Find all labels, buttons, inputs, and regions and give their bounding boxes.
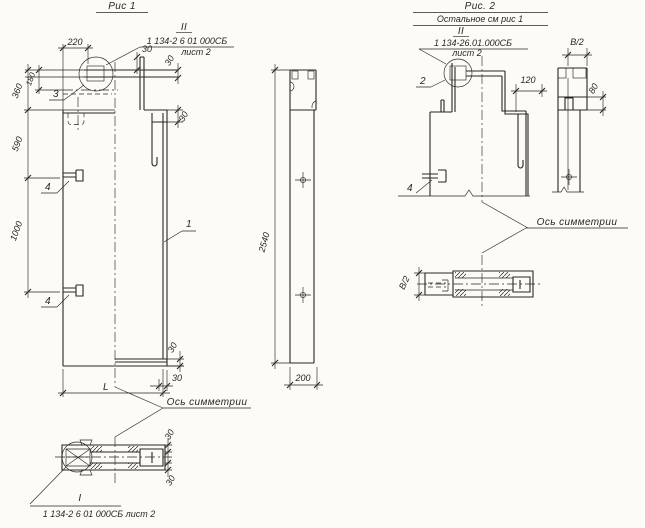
dim-220-label: 220 <box>66 37 82 47</box>
mark-1-leader <box>164 231 196 242</box>
fig1: Рис 1 II 1 134-2 6 01 000СБ лист 2 <box>8 1 251 519</box>
fig1-section-dim-30-top: 30 <box>163 428 177 442</box>
fig2-detail-callout: II 1 134-26.01.000СБ лист 2 <box>419 26 528 64</box>
fig2-side-view: В/2 80 <box>552 37 606 192</box>
fig2-section-centerlines <box>417 255 541 309</box>
dim-360-label: 360 <box>10 82 25 100</box>
dim-30-bottom-v-label: 30 <box>166 341 180 355</box>
drawing-canvas: Рис 1 II 1 134-2 6 01 000СБ лист 2 <box>0 0 645 528</box>
fig1-axis-leader <box>115 387 251 437</box>
fig1-callout-leader <box>106 47 140 65</box>
dim-30-bottom-v-lines <box>167 351 184 372</box>
fig2-axis-label: Ось симметрии <box>537 217 618 228</box>
dim-30-plate-label: 30 <box>142 44 152 54</box>
dim-left-chain-lines <box>28 64 39 298</box>
fig2-section-weld-4 <box>499 289 510 296</box>
fig1-section-view: 30 30 I 1 134-2 6 01 000СБ лист 2 <box>30 428 177 519</box>
dim-80-label: 80 <box>587 82 601 96</box>
fig2-callout-doc: 1 134-26.01.000СБ <box>434 38 512 48</box>
dim-590-label: 590 <box>10 135 25 153</box>
side-view-tab-2 <box>308 71 314 79</box>
drawing-sheet: Рис 1 II 1 134-2 6 01 000СБ лист 2 <box>0 0 645 528</box>
mark-3-label: 3 <box>53 89 59 100</box>
fig2-side-tab-2 <box>573 68 586 78</box>
fig2-callout-leader <box>419 49 446 64</box>
side-view: 2540 200 <box>256 64 323 390</box>
dim-L-lines <box>58 369 170 397</box>
fig1-member-lines <box>63 57 184 366</box>
fig2-callout-sheet: лист 2 <box>451 48 482 58</box>
fig1-section-weld-2 <box>90 463 102 469</box>
fig1-callout-sheet: лист 2 <box>180 47 211 57</box>
fig1-detail-circle <box>79 57 113 91</box>
fig2-section-weld-3 <box>499 272 510 278</box>
fig2-section-weld-1 <box>455 272 466 278</box>
dim-30-bottom-h-label: 30 <box>172 373 182 383</box>
fig1-hidden-centerlines <box>63 90 118 131</box>
fig2-side-hole-cross <box>561 169 577 185</box>
fig1-title: Рис 1 <box>108 1 136 12</box>
mark-2-label: 2 <box>419 76 426 87</box>
dim-120-lines <box>511 84 547 112</box>
fig1-extension-lines <box>24 70 115 292</box>
fig1-hidden-outline <box>63 94 112 125</box>
fig1-weld-hatch <box>87 66 104 81</box>
dim-L-label: L <box>103 382 109 393</box>
fig2-break-line <box>398 190 530 196</box>
fig1-front-view <box>24 57 184 486</box>
dim-2540-label: 2540 <box>256 231 271 254</box>
mark-4b-label: 4 <box>45 296 51 307</box>
fig1-section-doc: 1 134-2 6 01 000СБ лист 2 <box>43 509 156 519</box>
dim-1000-label: 1000 <box>8 220 24 242</box>
fig1-bracket-a <box>63 170 83 181</box>
fig2-section-view: В/2 <box>397 255 541 309</box>
dim-B2-top-label: В/2 <box>570 37 584 47</box>
side-view-hole-crosses <box>295 172 311 303</box>
fig1-section-mark: I <box>78 493 81 504</box>
fig2-callout-mark: II <box>458 26 464 37</box>
fig2-detail-circle <box>444 59 472 87</box>
fig2-subtitle: Остальное см рис 1 <box>437 14 523 24</box>
fig1-axis-label: Ось симметрии <box>167 397 248 408</box>
fig1-section-hinge <box>66 449 90 466</box>
side-view-outline <box>290 70 316 363</box>
side-view-tab-1 <box>292 71 298 79</box>
fig1-axis-callout: Ось симметрии <box>115 387 251 437</box>
side-view-notches <box>290 82 316 108</box>
mark-1-label: 1 <box>186 219 192 230</box>
mark-4-label: 4 <box>407 183 413 194</box>
dim-2540-lines <box>271 64 290 369</box>
fig1-section-weld-4 <box>128 463 138 469</box>
fig1-section-weld-3 <box>128 446 138 452</box>
dim-200-label: 200 <box>294 373 310 383</box>
fig2-side-outline <box>558 68 587 192</box>
fig2-front-view: 120 2 4 <box>398 56 547 202</box>
fig1-bracket-b <box>63 285 83 296</box>
fig2-bracket <box>422 170 446 182</box>
fig2-section-hidden <box>428 283 446 287</box>
mark-4a-label: 4 <box>45 182 51 193</box>
dim-180-label: 180 <box>24 71 37 87</box>
fig2-title: Рис. 2 <box>465 1 496 12</box>
fig1-section-dim-30-bottom: 30 <box>164 474 178 488</box>
fig1-callout-doc: 1 134-2 6 01 000СБ <box>147 36 228 46</box>
fig2: Рис. 2 Остальное см рис 1 II 1 134-26.01… <box>397 1 628 309</box>
dim-120-label: 120 <box>520 75 535 85</box>
fig2-member-lines <box>430 63 528 196</box>
dim-left-chain-ticks <box>25 67 42 295</box>
fig2-side-tab-1 <box>558 68 566 78</box>
fig1-section-callout-leader <box>30 467 121 506</box>
dim-30-bar-label: 30 <box>163 54 177 68</box>
fig1-callout-mark: II <box>181 22 187 33</box>
dim-30-bottom-h-lines <box>150 370 173 391</box>
fig2-section-weld-2 <box>455 289 466 296</box>
fig2-axis-callout: Ось симметрии <box>482 202 628 253</box>
dim-B2-section-label: В/2 <box>397 274 412 290</box>
fig1-section-weld-1 <box>90 446 102 452</box>
fig1-marks: 3 4 4 1 <box>41 85 196 307</box>
